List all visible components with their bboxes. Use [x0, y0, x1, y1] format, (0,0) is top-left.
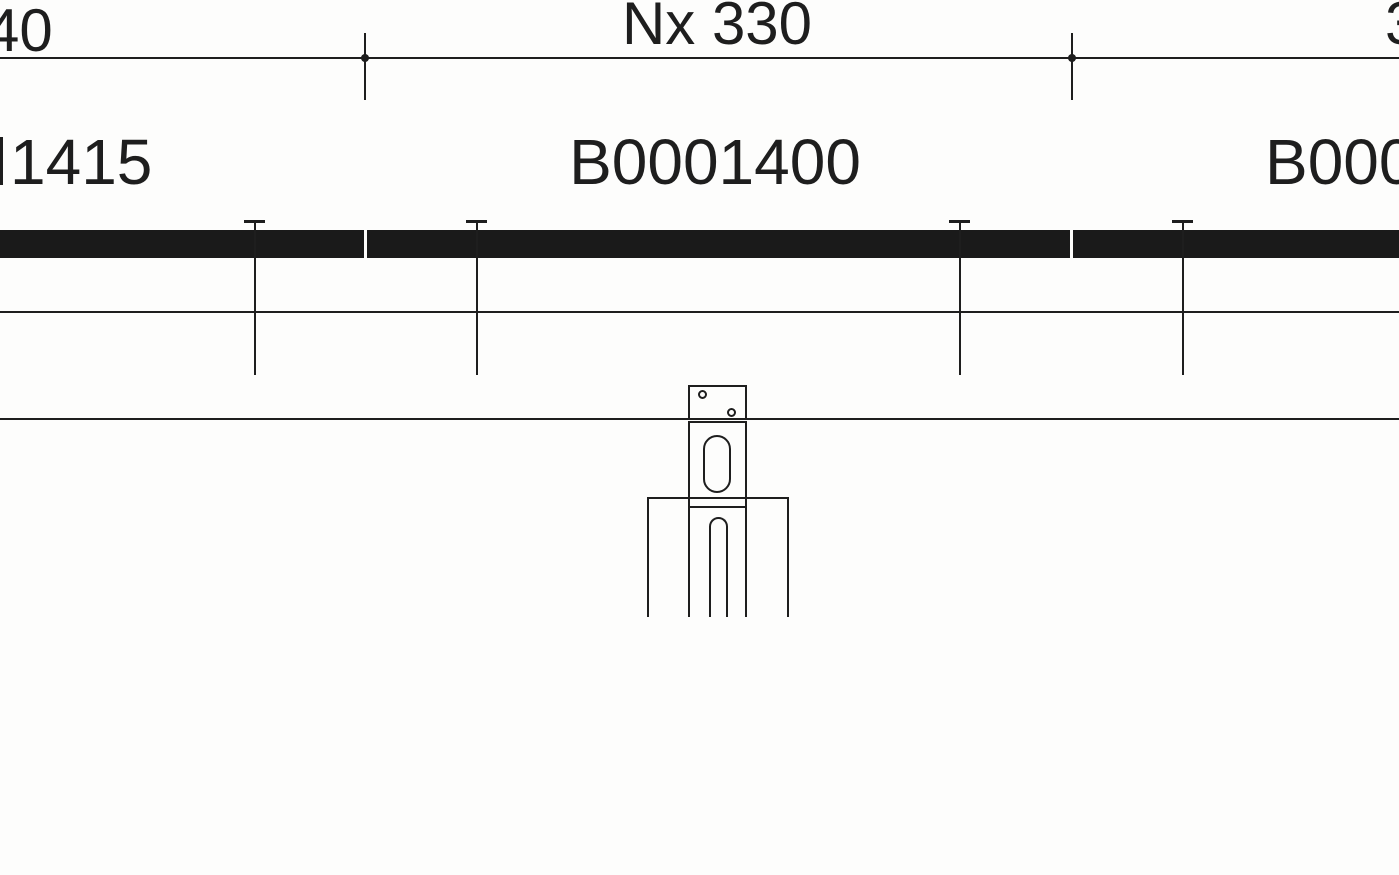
bracket-body-left-edge [688, 421, 690, 617]
dimension-node-dot-left [361, 54, 369, 62]
bracket-lower-slot [709, 517, 728, 617]
pin-stem [254, 223, 256, 375]
pin-stem [1182, 223, 1184, 375]
bracket-slot-obround [703, 435, 731, 493]
bracket-hole-lower [727, 408, 736, 417]
technical-drawing-canvas: 40 Nx 330 3 1415 B0001400 B000 [0, 0, 1399, 875]
dimension-value-left: 40 [0, 1, 53, 61]
bracket-body-bottom-edge [688, 506, 747, 508]
bracket-hole-upper [698, 390, 707, 399]
part-label-left: 1415 [10, 130, 152, 194]
bracket-base-top-edge [647, 497, 789, 499]
rail-segment-right [1073, 230, 1399, 258]
bracket-head [688, 385, 747, 420]
rail-segment-center [367, 230, 1070, 258]
bracket-base-right-edge [787, 497, 789, 617]
dimension-tick-right [1071, 33, 1073, 100]
dimension-value-span: Nx 330 [517, 0, 917, 54]
reference-line-upper [0, 311, 1399, 313]
rail-segment-left [0, 230, 364, 258]
bracket-body-top-edge [688, 421, 747, 423]
pin-stem [959, 223, 961, 375]
dimension-value-right: 3 [1385, 0, 1399, 54]
clipped-glyph-fragment [0, 137, 3, 185]
dimension-tick-left [364, 33, 366, 100]
dimension-node-dot-right [1068, 54, 1076, 62]
dimension-line [0, 57, 1399, 59]
pin-stem [476, 223, 478, 375]
bracket-base-left-edge [647, 497, 649, 617]
part-label-center: B0001400 [515, 130, 915, 194]
bracket-body-right-edge [745, 421, 747, 617]
part-label-right: B000 [1265, 130, 1399, 194]
